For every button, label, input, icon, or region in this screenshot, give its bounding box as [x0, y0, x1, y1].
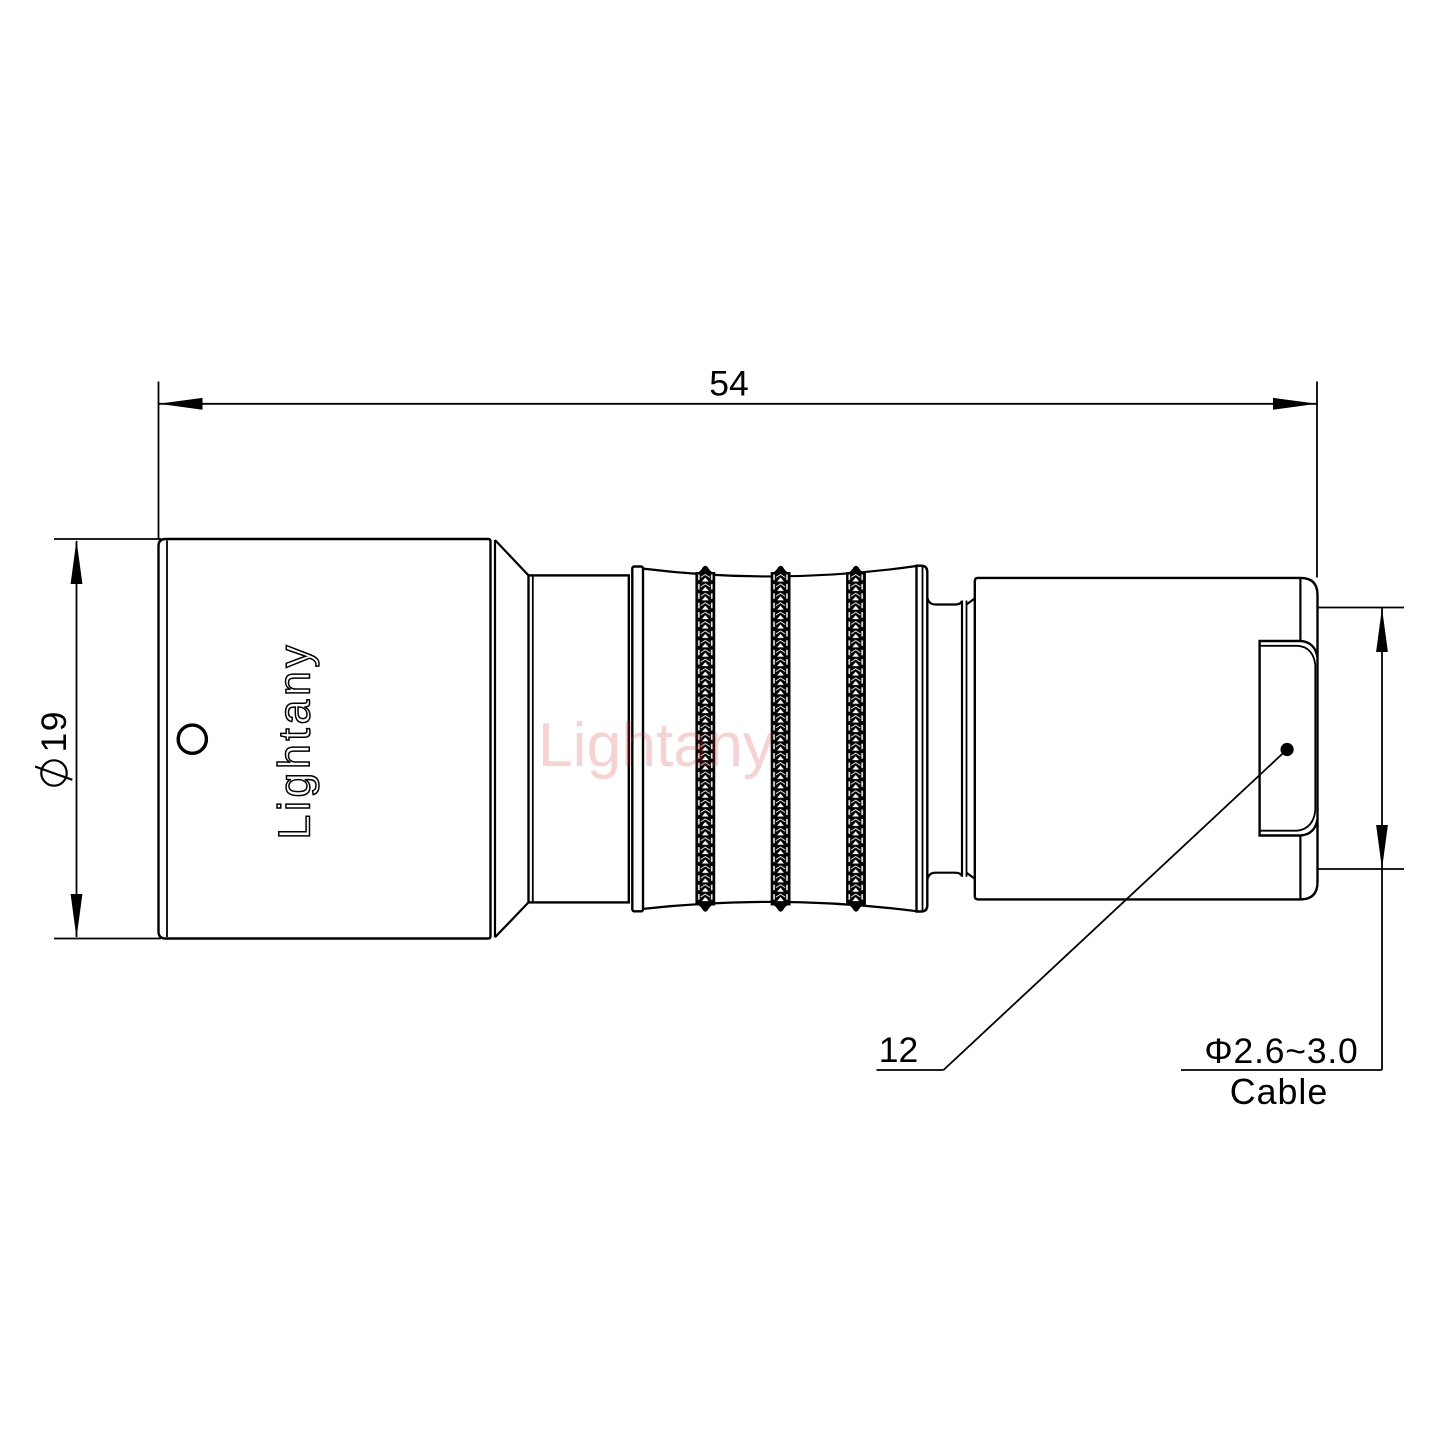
svg-text:Lightany: Lightany — [271, 642, 320, 840]
svg-text:Lightany: Lightany — [538, 710, 775, 780]
svg-text:12: 12 — [879, 1030, 919, 1070]
svg-text:19: 19 — [34, 710, 74, 753]
svg-text:Φ2.6~3.0: Φ2.6~3.0 — [1204, 1031, 1358, 1071]
svg-text:54: 54 — [709, 364, 749, 404]
svg-text:Cable: Cable — [1230, 1072, 1329, 1112]
